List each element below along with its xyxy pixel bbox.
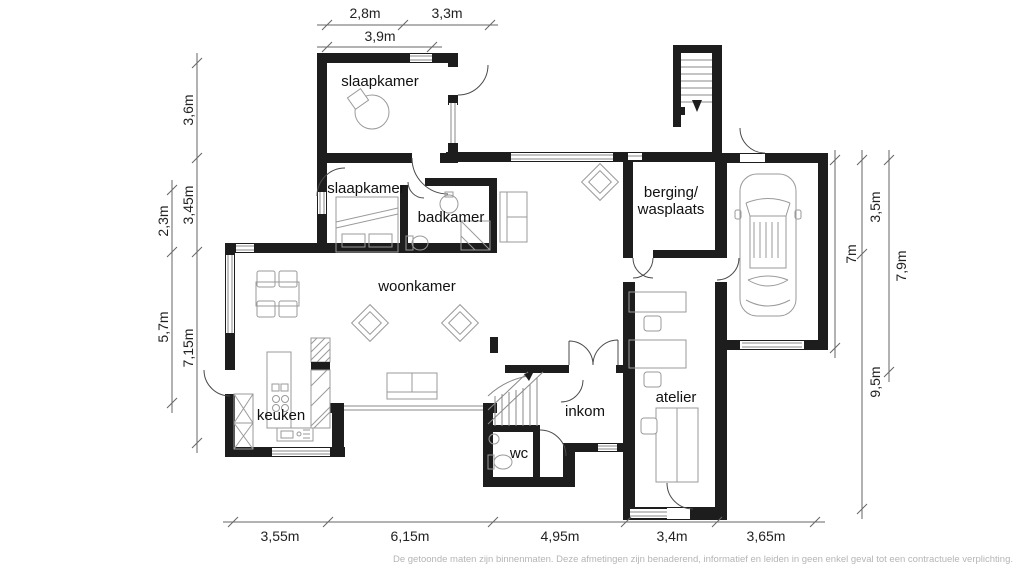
dim-label: 3,4m [656, 528, 687, 544]
room-label-slaapkamer-1: slaapkamer [341, 73, 419, 90]
dim-label: 7,15m [180, 329, 196, 368]
room-label-badkamer: badkamer [418, 209, 485, 226]
disclaimer-text: De getoonde maten zijn binnenmaten. Deze… [393, 554, 1013, 565]
floor-plan-page: 2,8m 3,3m 3,9m 3,6m 3,45m 2,3m 5,7m 7,15… [0, 0, 1024, 567]
dim-label: 5,7m [155, 311, 171, 342]
dim-label: 9,5m [867, 366, 883, 397]
dim-label: 3,65m [747, 528, 786, 544]
dim-label: 3,3m [431, 5, 462, 21]
window [226, 255, 234, 333]
floor-plan-drawing: 2,8m 3,3m 3,9m 3,6m 3,45m 2,3m 5,7m 7,15… [0, 0, 1024, 567]
window [272, 448, 330, 456]
dim-label: 3,5m [867, 191, 883, 222]
room-label-woonkamer: woonkamer [377, 278, 456, 295]
door-opening [740, 154, 765, 162]
dim-label: 7,9m [893, 250, 909, 281]
dim-label: 2,3m [155, 205, 171, 236]
dim-label: 3,9m [364, 28, 395, 44]
dim-label: 2,8m [349, 5, 380, 21]
door-sill [598, 444, 617, 451]
window [318, 192, 326, 214]
window [628, 153, 642, 160]
window [449, 103, 457, 143]
dim-label: 6,15m [391, 528, 430, 544]
door-opening [225, 370, 235, 394]
room-label-inkom: inkom [565, 403, 605, 420]
room-label-wc: wc [509, 445, 529, 462]
room-label-berging-line2: wasplaats [637, 201, 705, 218]
window [410, 54, 432, 62]
door-opening [667, 508, 690, 519]
window [511, 153, 613, 161]
dim-label: 3,6m [180, 94, 196, 125]
dim-label: 3,45m [180, 186, 196, 225]
window [630, 509, 667, 518]
room-label-keuken: keuken [257, 407, 305, 424]
room-label-slaapkamer-2: slaapkamer [327, 180, 405, 197]
room-label-berging-line1: berging/ [644, 184, 699, 201]
dim-label: 7m [843, 244, 859, 263]
garage-door [740, 341, 804, 349]
window [236, 244, 254, 252]
room-label-atelier: atelier [656, 389, 697, 406]
window [344, 404, 483, 412]
dim-label: 4,95m [541, 528, 580, 544]
dim-label: 3,55m [261, 528, 300, 544]
